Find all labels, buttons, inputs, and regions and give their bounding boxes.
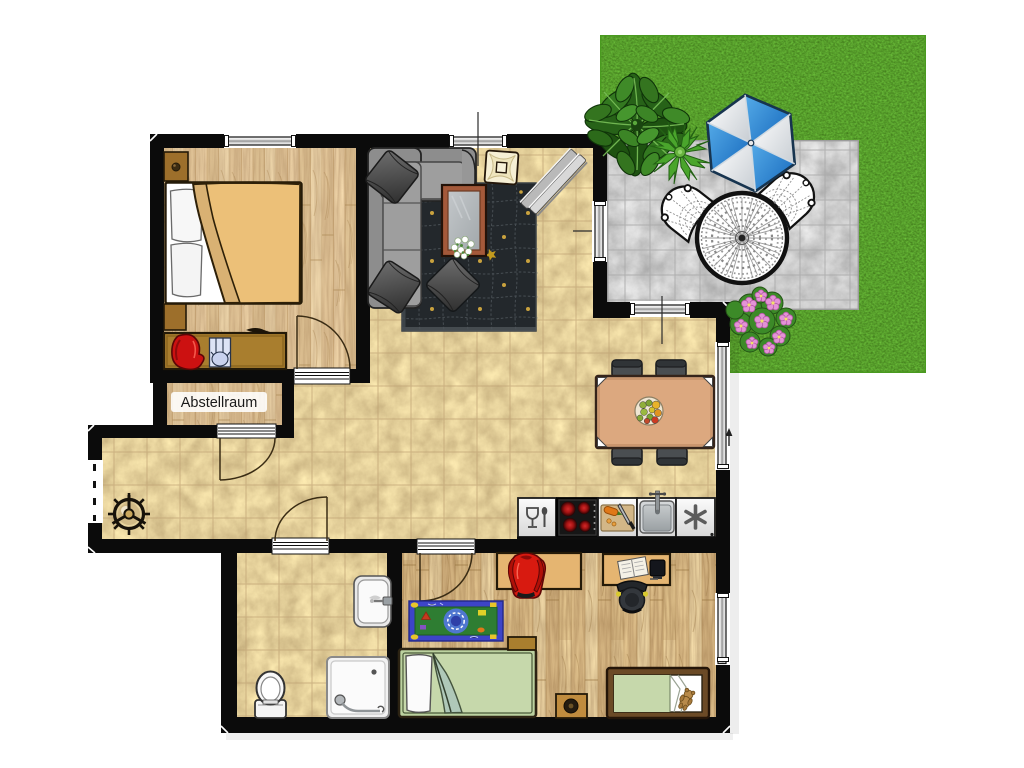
svg-text:Abstellraum: Abstellraum	[181, 395, 258, 411]
